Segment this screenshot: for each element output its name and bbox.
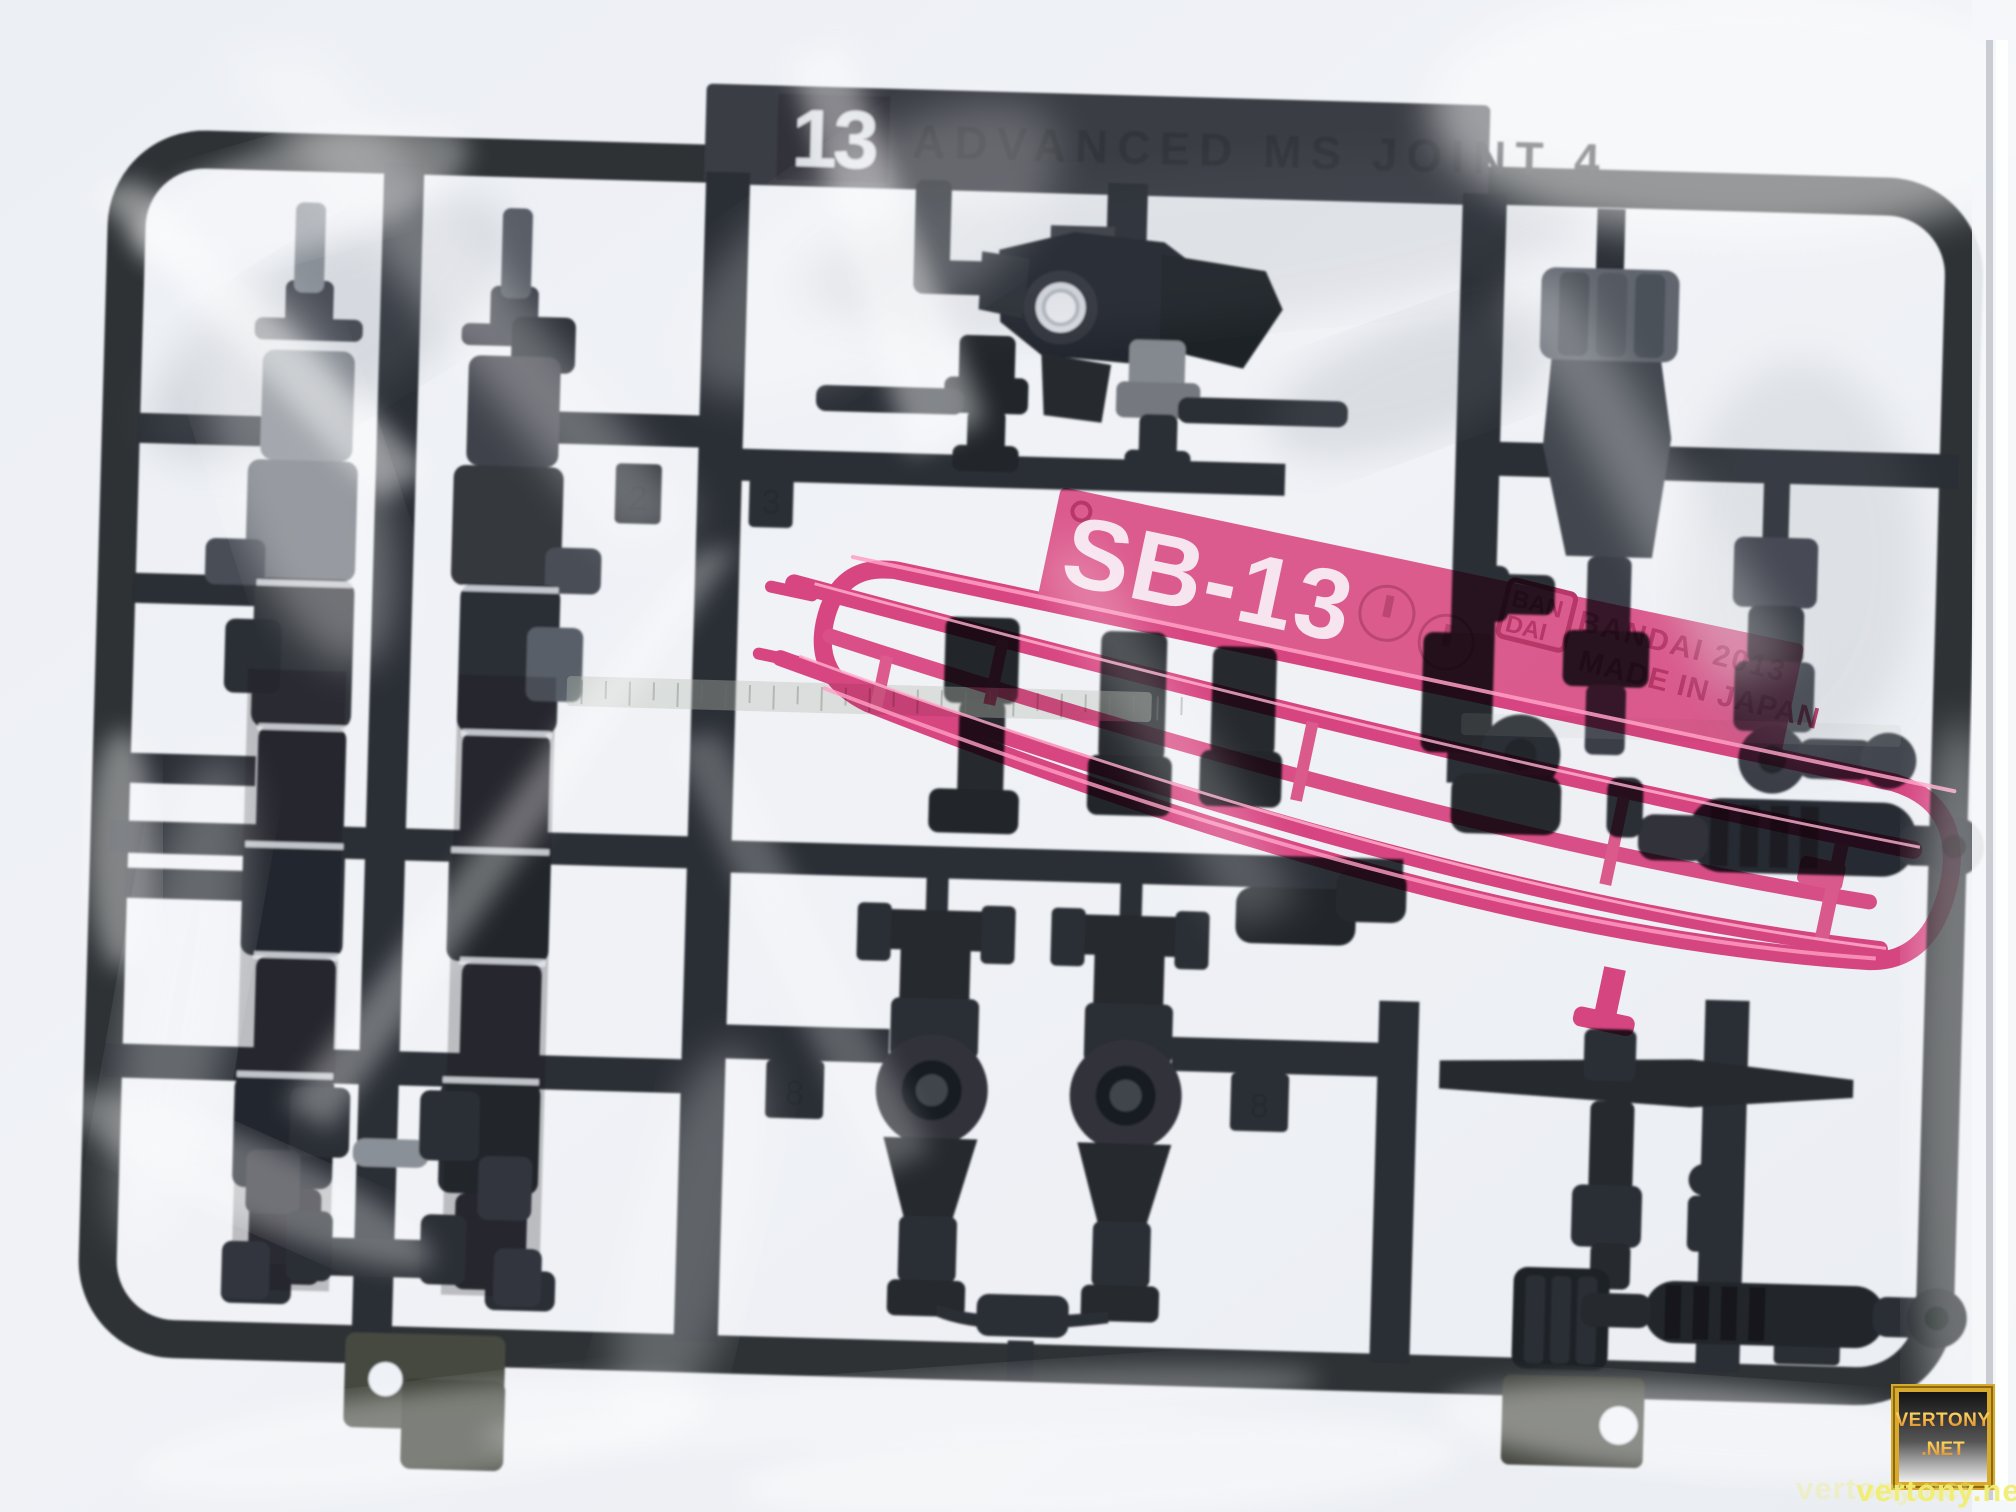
svg-text:VERTONY: VERTONY	[1895, 1410, 1990, 1431]
svg-text:8: 8	[785, 1074, 805, 1113]
svg-text:vertony.net: vertony.net	[1856, 1473, 2016, 1508]
svg-text:3: 3	[761, 483, 781, 522]
svg-text:.NET: .NET	[1921, 1439, 1965, 1460]
svg-text:8: 8	[1249, 1087, 1269, 1126]
